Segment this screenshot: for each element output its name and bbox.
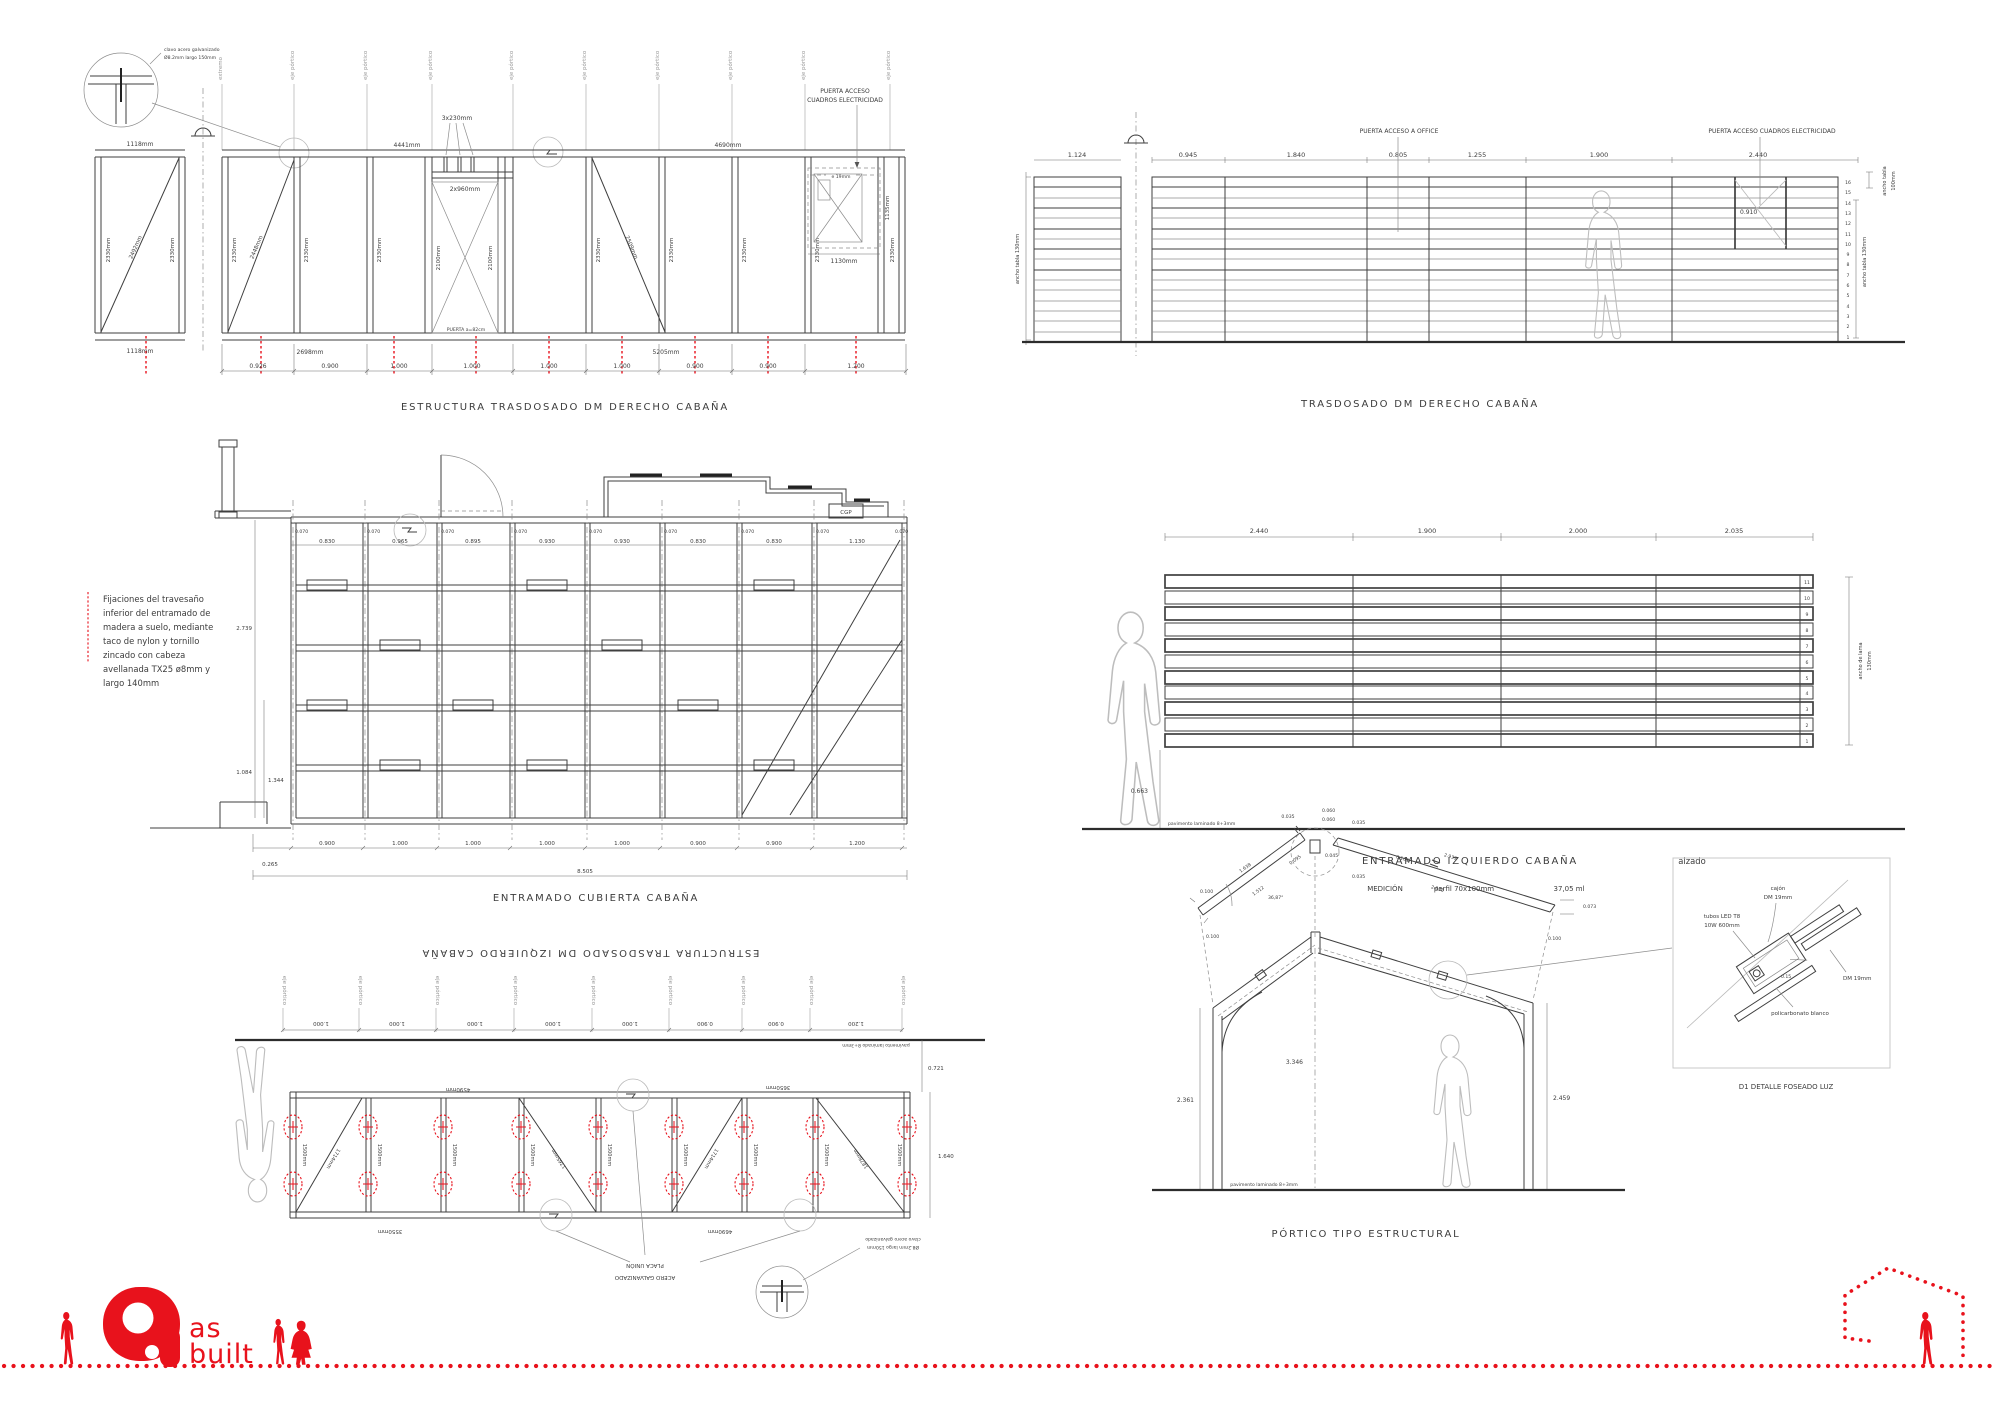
- drawing-trasdosado-dm-derecho: ancho tabla 130mm 1.124 0.945 1.840 0.80…: [1015, 112, 1905, 410]
- chain-dim: 2.440: [1749, 151, 1768, 159]
- chain-dim: 1.840: [1287, 151, 1306, 159]
- fixing-note-line: largo 140mm: [103, 678, 159, 688]
- row-number: 11: [1804, 580, 1810, 586]
- fixing-note-line: inferior del entramado de: [103, 608, 210, 618]
- led-label-1: tubos LED T8: [1704, 914, 1741, 920]
- drawing-entramado-izquierdo: 2.440 1.900 2.000 2.035 11 10 9 8 7 6 5 …: [1082, 527, 1905, 893]
- person-silhouette: [1434, 1035, 1471, 1187]
- cajon-label-2: DM 19mm: [1764, 895, 1792, 901]
- stud-dim: 2330mm: [890, 238, 896, 263]
- total-dim: 8.505: [577, 869, 593, 875]
- row-number: 3: [1806, 707, 1809, 713]
- chain-dim: 1.200: [849, 841, 865, 847]
- span-dim: 0.930: [539, 539, 555, 545]
- chain-dim: 1.000: [389, 1020, 405, 1026]
- stud-dim: 2330mm: [170, 238, 176, 263]
- gap-dim: 0.15: [1781, 974, 1791, 980]
- chain-dim: 0.900: [697, 1020, 713, 1026]
- fixing-note-line: avellanada TX25 ø8mm y: [103, 664, 210, 674]
- row-number: 12: [1845, 221, 1851, 227]
- axis-eje-portico: eje pórtico: [512, 976, 519, 1006]
- row-number: 10: [1804, 596, 1810, 602]
- axis-eje-portico: eje pórtico: [357, 976, 364, 1006]
- axis-eje-portico: eje pórtico: [654, 50, 661, 80]
- stud-dim: 1500mm: [682, 1144, 688, 1167]
- row-number: 6: [1806, 660, 1809, 666]
- drawing-title: PÓRTICO TIPO ESTRUCTURAL: [1272, 1227, 1461, 1240]
- chain-dim: 1.000: [622, 1020, 638, 1026]
- dim: 0.035: [1352, 874, 1365, 880]
- row-number: 6: [1847, 283, 1850, 289]
- row-number: 3: [1847, 314, 1850, 320]
- axis-eje-portico: eje pórtico: [900, 976, 907, 1006]
- row-number: 1: [1806, 739, 1809, 745]
- chain-dim: 0.900: [690, 841, 706, 847]
- bottom-dim: 2698mm: [297, 349, 324, 356]
- stud-width: 0.070: [741, 529, 754, 535]
- drawing-estructura-trasdosado-dm-derecho: clavo acero galvanizado Ø8.2mm largo 150…: [84, 47, 908, 413]
- chain-dim: 1.000: [313, 1020, 329, 1026]
- measurement-label: MEDICIÓN: [1367, 884, 1403, 893]
- row-number: 8: [1847, 262, 1850, 268]
- nail-note-line2: Ø8.2mm largo 150mm: [164, 54, 217, 61]
- dim: 0.060: [1322, 808, 1335, 814]
- stud-width: 0.070: [664, 529, 677, 535]
- axis-eje-portico: eje pórtico: [508, 50, 515, 80]
- wall-height: 2.361: [1177, 1097, 1194, 1104]
- chain-dim: 0.900: [759, 363, 776, 370]
- drawing-entramado-cubierta: Fijaciones del travesaño inferior del en…: [88, 440, 908, 904]
- dim: 0.060: [1322, 817, 1335, 823]
- height-dim: 1.640: [938, 1154, 954, 1160]
- chain-dim: 1.000: [392, 841, 408, 847]
- axis-eje-portico: eje pórtico: [808, 976, 815, 1006]
- led-label-2: 10W 600mm: [1704, 923, 1739, 929]
- chain-dim: 1.000: [467, 1020, 483, 1026]
- cajon-label-1: cajón: [1771, 885, 1786, 892]
- fixing-note-line: madera a suelo, mediante: [103, 622, 213, 632]
- nail-note-rotated-1: clavo acero galvanizado: [865, 1236, 921, 1242]
- roof-angle: 36,87°: [1268, 895, 1283, 901]
- board-label: DM 19mm: [1843, 976, 1871, 982]
- house-person-icon: [1920, 1312, 1933, 1365]
- span-dim: 0.830: [766, 539, 782, 545]
- chain-dim: 1.000: [463, 363, 480, 370]
- row-number: 7: [1806, 644, 1809, 650]
- row-number: 7: [1847, 273, 1850, 279]
- stud-width: 0.070: [589, 529, 602, 535]
- stud-dim: 2330mm: [232, 238, 238, 263]
- stud-dim: 2330mm: [669, 238, 675, 263]
- span-dim: 0.930: [614, 539, 630, 545]
- stud-dim: 1500mm: [606, 1144, 612, 1167]
- height-dim: 1.084: [236, 770, 252, 776]
- axis-eje-portico: eje pórtico: [581, 50, 588, 80]
- bottom-dim: 5205mm: [653, 349, 680, 356]
- stud-dim: 2330mm: [596, 238, 602, 263]
- span-dim: 4441mm: [394, 142, 421, 149]
- dim: 0.035: [1352, 820, 1365, 826]
- stud-width: 0.070: [367, 529, 380, 535]
- stud-dim: 1500mm: [823, 1144, 829, 1167]
- drawing-title: TRASDOSADO DM DERECHO CABAÑA: [1300, 397, 1539, 410]
- dim: 0.100: [1206, 934, 1219, 940]
- board-width-label: ancho tabla 130mm: [1015, 234, 1021, 284]
- offset-dim: 0.265: [262, 862, 278, 868]
- row-number: 5: [1847, 293, 1850, 299]
- stud-dim: 1500mm: [376, 1144, 382, 1167]
- chain-dim: 1.000: [545, 1020, 561, 1026]
- stud-dim: 1500mm: [752, 1144, 758, 1167]
- board-width-label-2: 100mm: [1891, 171, 1897, 190]
- office-door-label: PUERTA ACCESO A OFFICE: [1360, 128, 1439, 135]
- stud-width: 0.070: [895, 529, 908, 535]
- height-dim: 0.663: [1131, 788, 1148, 795]
- drawing-portico-tipo-estructural: 0.035 0.060 0.060 0.045 0.095 1.638 1.51…: [1152, 808, 1672, 1240]
- drawing-title-rotated: ESTRUCTURA TRASDOSADO DM IZQUIERDO CABAÑ…: [421, 947, 760, 960]
- chain-dim: 1.000: [614, 841, 630, 847]
- row-number: 15: [1845, 190, 1851, 196]
- span-dim: 0.830: [319, 539, 335, 545]
- dim: 0.073: [1583, 904, 1596, 910]
- row-number: 8: [1806, 628, 1809, 634]
- axis-eje-portico: eje pórtico: [281, 976, 288, 1006]
- door-dim: 2x960mm: [450, 186, 481, 193]
- chord-dim: 4690mm: [708, 1228, 733, 1234]
- polycarbonate-label: policarbonato blanco: [1771, 1011, 1829, 1017]
- axis-eje-portico: eje pórtico: [800, 50, 807, 80]
- wall-height: 2.459: [1553, 1095, 1570, 1102]
- door-label: PUERTA a=82cm: [447, 327, 486, 333]
- chain-dim: 1.000: [540, 363, 557, 370]
- stud-dim: 1500mm: [529, 1144, 535, 1167]
- walking-man-icon: [61, 1312, 74, 1365]
- chain-dim: 1.000: [465, 841, 481, 847]
- panel-width-dim: 1118mm: [127, 141, 154, 148]
- nail-note-line1: clavo acero galvanizado: [164, 47, 220, 53]
- chain-dim: 0.900: [766, 841, 782, 847]
- elec-door-label-2: CUADROS ELECTRICIDAD: [807, 97, 883, 104]
- chain-dim: 2.440: [1250, 527, 1269, 535]
- brace-dim: 1878mm: [852, 1147, 870, 1169]
- stud-dim: 2330mm: [377, 238, 383, 263]
- person-silhouette: [1586, 191, 1622, 339]
- brace-dim: 1765mm: [550, 1147, 568, 1169]
- drawing-estructura-trasdosado-dm-izquierdo: ESTRUCTURA TRASDOSADO DM IZQUIERDO CABAÑ…: [235, 947, 985, 1318]
- stud-width: 0.070: [295, 529, 308, 535]
- axis-eje-portico: eje pórtico: [740, 976, 747, 1006]
- chain-dim: 1.200: [847, 363, 864, 370]
- drawing-sheet: clavo acero galvanizado Ø8.2mm largo 150…: [0, 0, 2000, 1414]
- person-silhouette-rotated: [236, 1047, 274, 1202]
- axis-eje-portico: eje pórtico: [289, 50, 296, 80]
- stud-dim: 1500mm: [301, 1144, 307, 1167]
- detail-d1-foseado-luz: cajón DM 19mm tubos LED T8 10W 600mm 0.1…: [1673, 858, 1890, 1091]
- row-number: 14: [1845, 201, 1851, 207]
- cabinet-width-dim: 1130mm: [831, 258, 858, 265]
- couple-man-icon: [273, 1319, 284, 1365]
- row-number: 1: [1847, 335, 1850, 341]
- asbuilt-a-icon: [103, 1287, 180, 1367]
- detail-callout-circle: [1429, 961, 1467, 999]
- drawing-title: ENTRAMADO IZQUIERDO CABAÑA: [1362, 854, 1578, 867]
- height-dim: 1.344: [268, 778, 284, 784]
- cgp-box-label: CGP: [840, 510, 852, 516]
- stud-width: 0.070: [514, 529, 527, 535]
- door-height-dim: 2100mm: [436, 246, 442, 271]
- row-number: 4: [1806, 691, 1809, 697]
- axis-eje-portico: eje pórtico: [727, 50, 734, 80]
- stud-width: 0.070: [816, 529, 829, 535]
- board-width-label-1: ancho tabla: [1882, 166, 1888, 195]
- chord-dim: 4590mm: [446, 1086, 471, 1092]
- cabinet-height-dim: 1135mm: [885, 196, 891, 221]
- axis-extremo: extremo: [218, 56, 224, 80]
- row-number: 5: [1806, 676, 1809, 682]
- row-number: 2: [1847, 324, 1850, 330]
- axis-eje-portico: eje pórtico: [590, 976, 597, 1006]
- axis-eje-portico: eje pórtico: [427, 50, 434, 80]
- detail-title: D1 DETALLE FOSEADO LUZ: [1739, 1083, 1834, 1091]
- door-width-dim: 0.910: [1740, 209, 1757, 216]
- axis-eje-portico: eje pórtico: [885, 50, 892, 80]
- nail-note-rotated-2: Ø8.2mm largo 150mm: [866, 1244, 919, 1251]
- chain-dim: 0.900: [768, 1020, 784, 1026]
- couple-woman-icon: [291, 1321, 312, 1365]
- chain-dim: 1.900: [1590, 151, 1609, 159]
- sheet-canvas: clavo acero galvanizado Ø8.2mm largo 150…: [0, 0, 2000, 1414]
- stud-dim: 2330mm: [304, 238, 310, 263]
- stud-dim: 2330mm: [815, 238, 821, 263]
- chain-dim: 2.035: [1725, 527, 1744, 535]
- board-width-label: ancho tabla 130mm: [1862, 237, 1868, 287]
- elec-door-label: PUERTA ACCESO CUADROS ELECTRICIDAD: [1708, 128, 1836, 135]
- chain-dim: 1.000: [613, 363, 630, 370]
- door-height-dim: 2100mm: [488, 246, 494, 271]
- chord-dim: 3550mm: [378, 1228, 403, 1234]
- chain-dim: 1.900: [1418, 527, 1437, 535]
- offset-dim: 0.721: [928, 1066, 944, 1072]
- fixing-note-line: zincado con cabeza: [103, 650, 185, 660]
- stud-width: 0.070: [441, 529, 454, 535]
- slat-width-label-2: 130mm: [1867, 651, 1873, 670]
- fixing-note-line: taco de nylon y tornillo: [103, 636, 199, 646]
- row-number: 2: [1806, 723, 1809, 729]
- ridge-height: 3.346: [1286, 1059, 1303, 1066]
- span-dim: 0.830: [690, 539, 706, 545]
- dim: 0.045: [1325, 853, 1338, 859]
- brace-dim: 2492mm: [128, 235, 144, 260]
- brace-dim: 2509mm: [623, 235, 638, 260]
- stud-dim: 1500mm: [896, 1144, 902, 1167]
- dim: 1.124: [1068, 151, 1087, 159]
- row-number: 9: [1847, 252, 1850, 258]
- row-number: 16: [1845, 180, 1851, 186]
- span-dim: 1.130: [849, 539, 865, 545]
- chain-dim: 0.900: [321, 363, 338, 370]
- drawing-title: ENTRAMADO CUBIERTA CABAÑA: [493, 891, 699, 904]
- plate-note-2: ACERO GALVANIZADO: [614, 1274, 675, 1280]
- axis-eje-portico: eje pórtico: [434, 976, 441, 1006]
- dim: 0.095: [1288, 854, 1302, 867]
- row-number: 9: [1806, 612, 1809, 618]
- decor-house: [1845, 1268, 1963, 1365]
- floor-label: pavimento laminado 8+3mm: [1230, 1182, 1298, 1188]
- row-number: 13: [1845, 211, 1851, 217]
- plate-note-1: PLACA UNIÓN: [626, 1262, 664, 1269]
- dim: 0.100: [1200, 889, 1213, 895]
- elec-door-label-1: PUERTA ACCESO: [820, 88, 870, 95]
- span-dim: 4690mm: [715, 142, 742, 149]
- chain-dim: 1.255: [1468, 151, 1487, 159]
- chain-dim: 0.900: [686, 363, 703, 370]
- chord-dim: 3650mm: [766, 1084, 791, 1090]
- slat-width-label-1: ancho de lama: [1858, 642, 1864, 679]
- floor-label-rotated: pavimento laminado 8+3mm: [842, 1042, 910, 1048]
- chain-dim: 1.200: [848, 1020, 864, 1026]
- span-dim: 0.965: [392, 539, 408, 545]
- row-number: 11: [1845, 232, 1851, 238]
- chain-dim: 1.000: [539, 841, 555, 847]
- height-dim: 2.739: [236, 626, 252, 632]
- row-number: 10: [1845, 242, 1851, 248]
- board-thickness: e 19mm: [831, 174, 851, 180]
- axis-eje-portico: eje pórtico: [362, 50, 369, 80]
- dotted-house-outline: [1845, 1268, 1963, 1362]
- axis-eje-portico: eje pórtico: [667, 976, 674, 1006]
- logo-as-built: as built: [4, 1287, 1998, 1370]
- header-dim: 3x230mm: [442, 115, 473, 122]
- chain-dim: 0.945: [1179, 151, 1198, 159]
- bottom-dim: 1118mm: [127, 348, 154, 355]
- span-dim: 0.895: [465, 539, 481, 545]
- stud-dim: 2330mm: [106, 238, 112, 263]
- rafter-length: 1.512: [1251, 885, 1265, 898]
- stud-dim: 1500mm: [451, 1144, 457, 1167]
- stud-dim: 2330mm: [742, 238, 748, 263]
- row-number: 4: [1847, 304, 1850, 310]
- floor-label: pavimento laminado 8+3mm: [1168, 821, 1236, 827]
- chain-dim: 1.000: [390, 363, 407, 370]
- chain-dim: 0.926: [249, 363, 266, 370]
- chain-dim: 2.000: [1569, 527, 1588, 535]
- drawing-title: ESTRUCTURA TRASDOSADO DM DERECHO CABAÑA: [401, 400, 729, 413]
- dim: 0.035: [1281, 814, 1294, 820]
- measurement-length: 37,05 ml: [1553, 885, 1584, 893]
- fixing-note-line: Fijaciones del travesaño: [103, 594, 204, 604]
- dim: 0.100: [1548, 936, 1561, 942]
- chain-dim: 0.900: [319, 841, 335, 847]
